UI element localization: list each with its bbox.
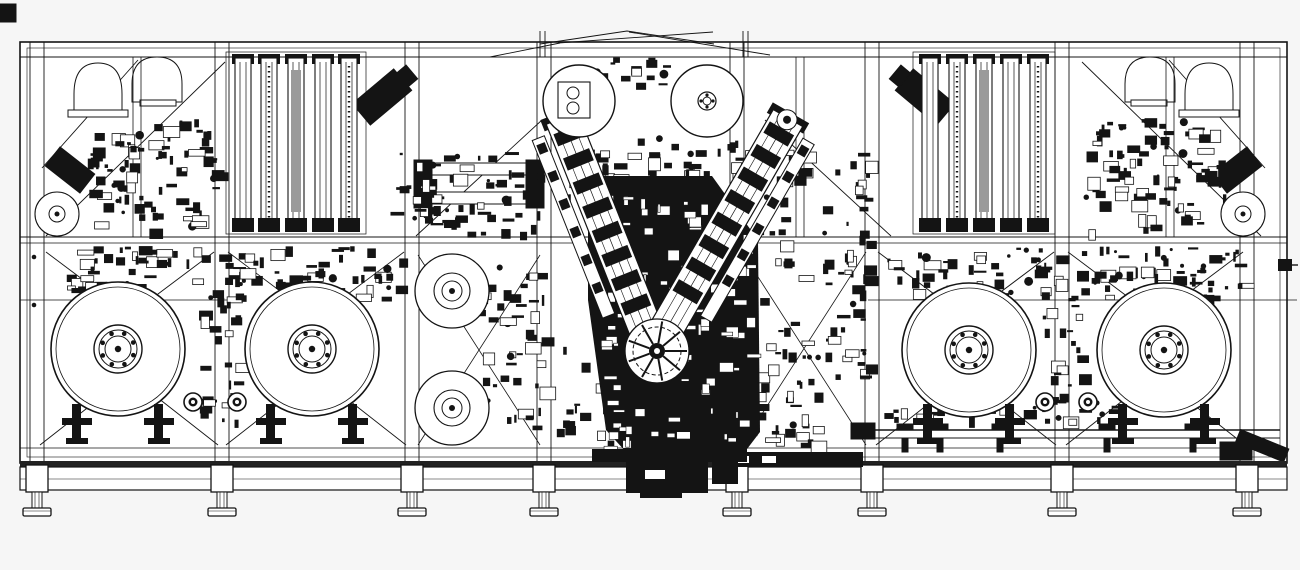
machine-assembly-drawing bbox=[0, 0, 1300, 570]
process-turret bbox=[625, 319, 689, 383]
cad-drawing-page bbox=[0, 0, 1300, 570]
